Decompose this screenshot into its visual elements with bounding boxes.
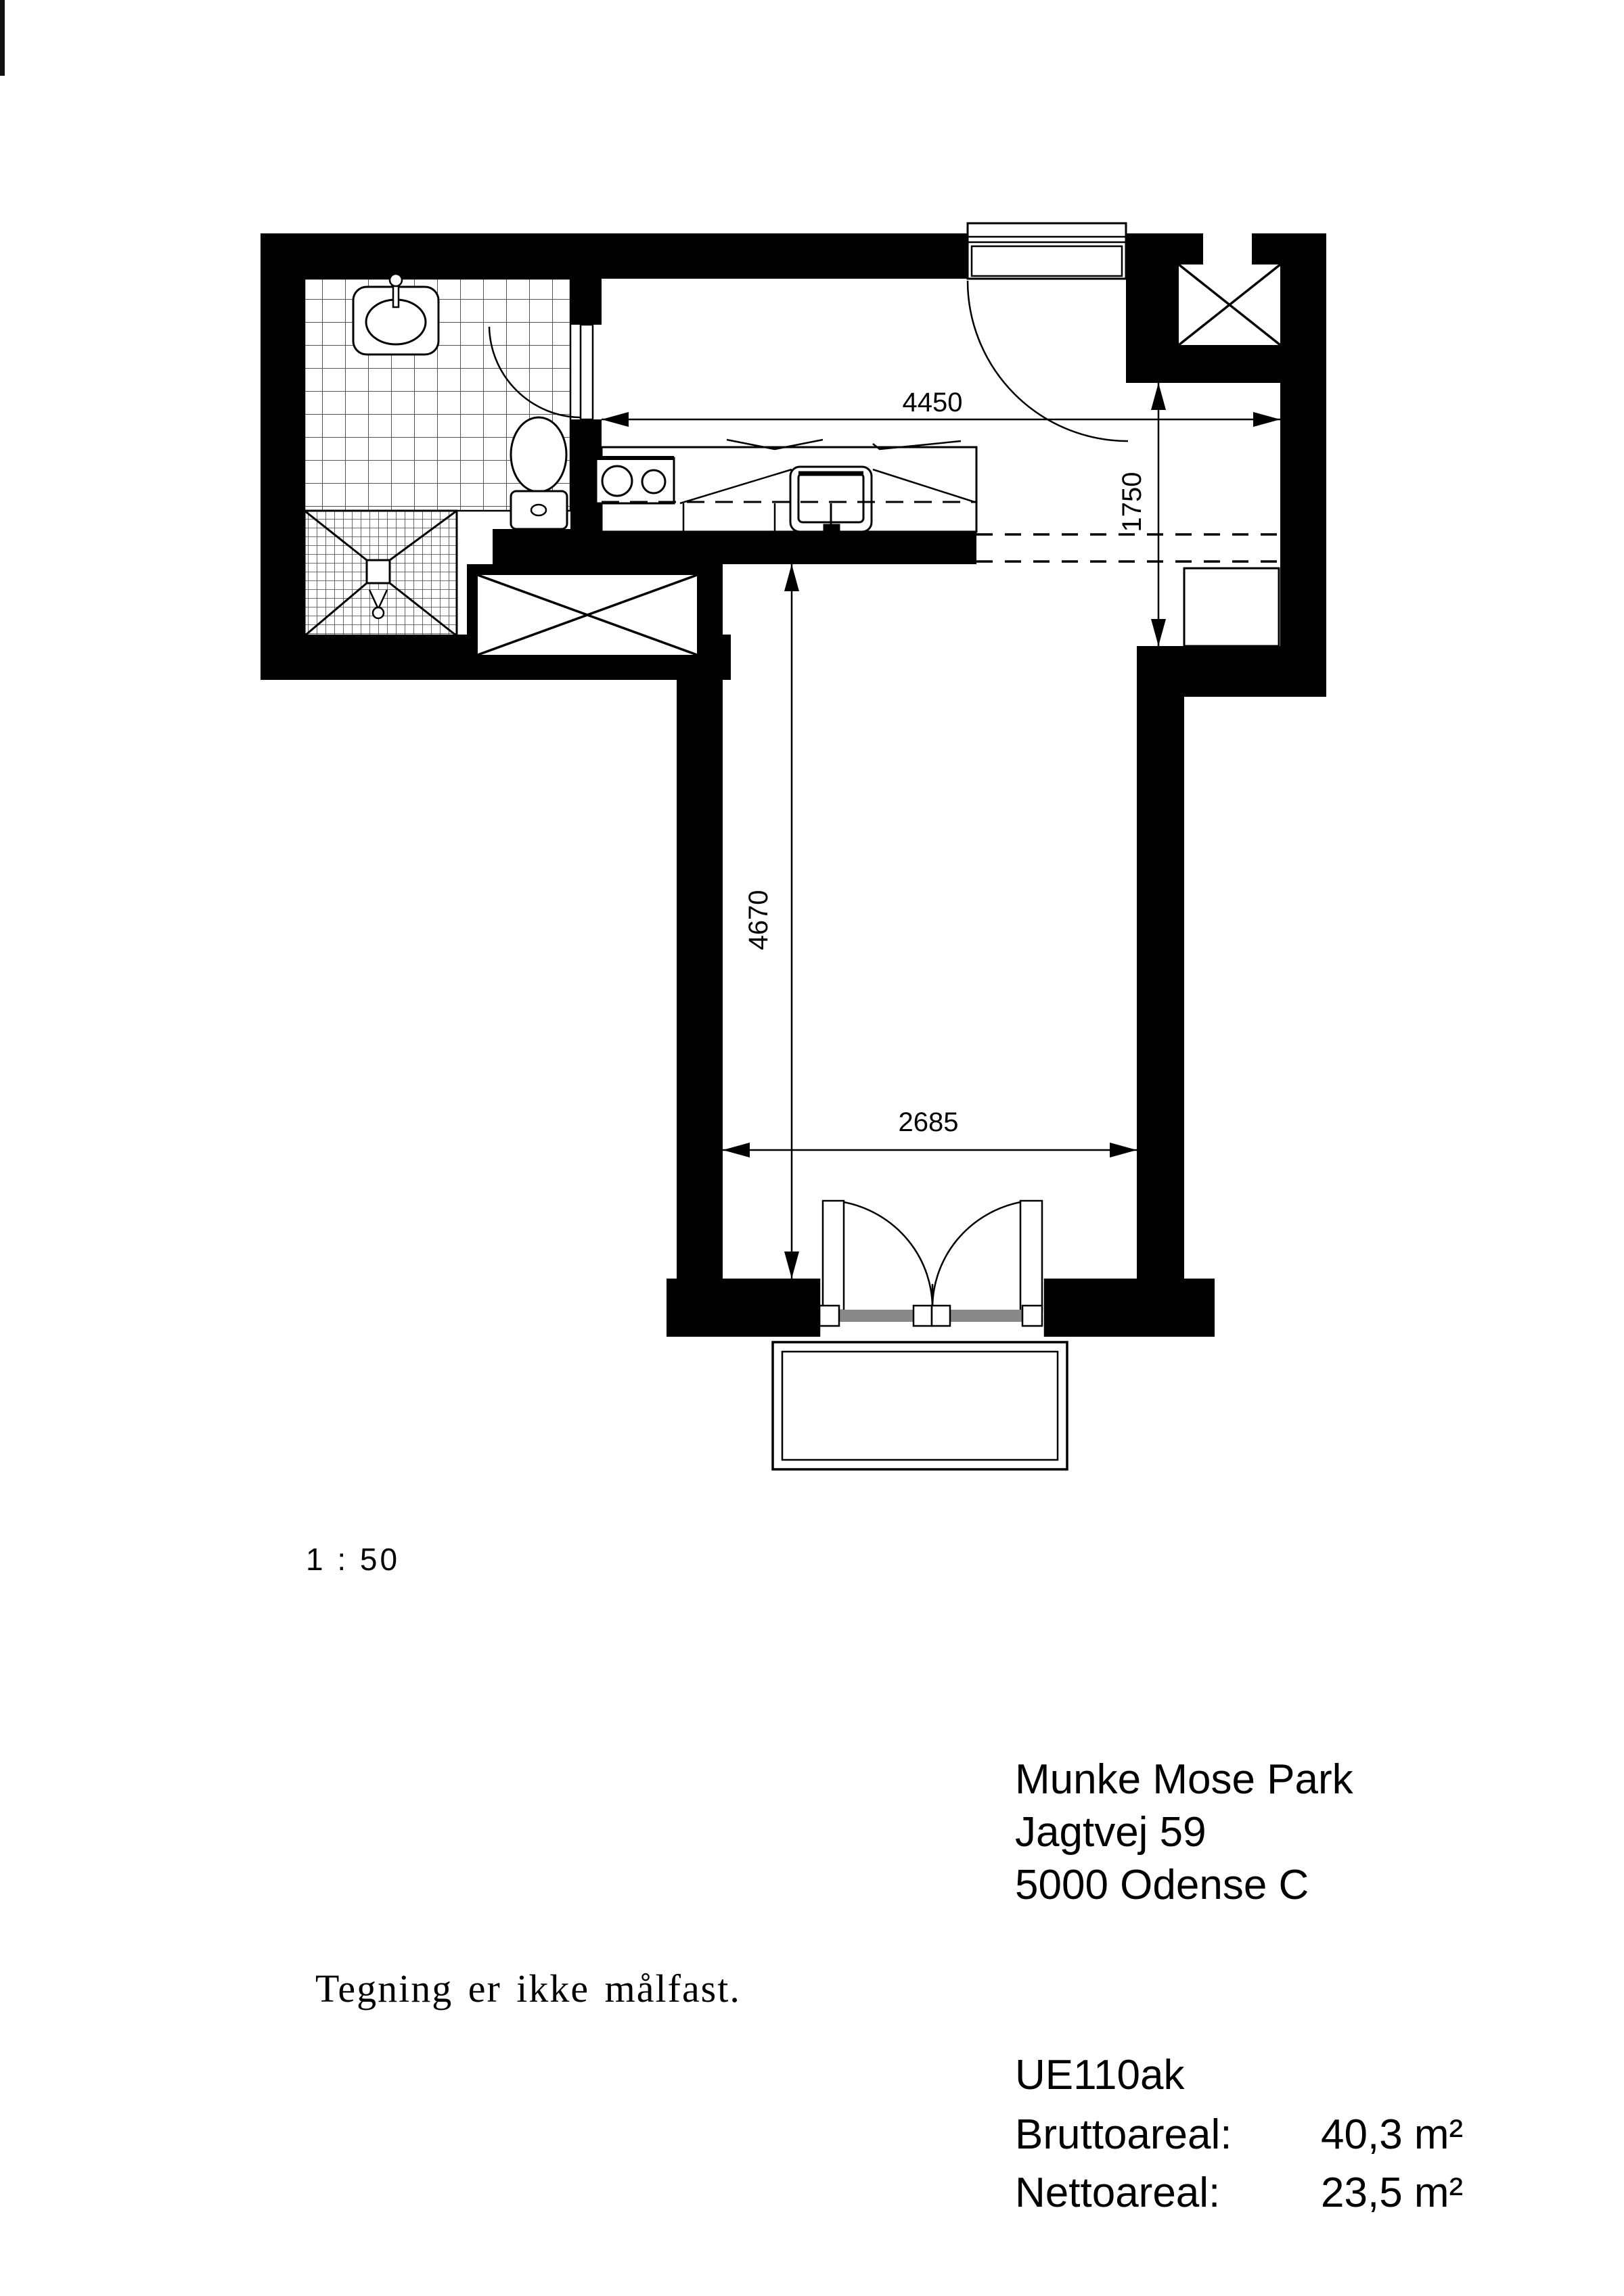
unit-info-block: UE110ak Bruttoareal:40,3 m² Nettoareal:2… [1015,2054,1463,2215]
bathroom-door-leaf [581,325,593,419]
address-line-3: 5000 Odense C [1015,1859,1353,1912]
gross-area-label: Bruttoareal: [1015,2113,1321,2157]
not-to-scale-note: Tegning er ikke målfast. [315,1966,741,2011]
floorplan-sheet: { "plan": { "scale_label": "1 : 50", "no… [0,0,1624,2296]
dimension-4450: 4450 [602,388,1280,427]
toilet-symbol [511,417,567,529]
dimension-2685: 2685 [723,1107,1137,1157]
dim-room-length-label: 4670 [744,890,773,950]
address-line-1: Munke Mose Park [1015,1753,1353,1806]
washbasin-symbol [353,274,438,354]
hall-cabinet [1184,568,1279,646]
dim-hall-depth-label: 1750 [1117,472,1147,532]
gross-area-row: Bruttoareal:40,3 m² [1015,2113,1463,2157]
cooktop-symbol [596,458,674,503]
dimension-4670: 4670 [744,564,799,1279]
dim-kitchen-width-label: 4450 [903,388,963,417]
net-area-value: 23,5 m² [1321,2169,1463,2216]
address-block: Munke Mose Park Jagtvej 59 5000 Odense C [1015,1753,1353,1912]
overhead-opening-dashes [976,534,1280,561]
kitchen-counter [596,440,976,533]
balcony [773,1342,1067,1469]
entrance-door-swing-arc [968,281,1128,441]
address-line-2: Jagtvej 59 [1015,1806,1353,1859]
french-doors-symbol [823,1201,1042,1310]
gross-area-value: 40,3 m² [1321,2111,1463,2158]
floorplan-drawing: 4450 1750 4670 2685 [0,0,1624,1624]
shower-symbol [304,511,457,636]
page-corner-mark [0,0,5,76]
entrance-door-symbol [968,223,1128,441]
net-area-row: Nettoareal:23,5 m² [1015,2172,1463,2215]
dim-room-width-label: 2685 [899,1107,959,1137]
unit-id: UE110ak [1015,2054,1463,2097]
shower-drain-icon [367,560,390,583]
kitchen-sink-symbol [790,467,872,533]
scale-label: 1 : 50 [306,1541,400,1578]
dimension-1750: 1750 [1117,383,1166,646]
net-area-label: Nettoareal: [1015,2172,1321,2215]
wall-niche [1203,233,1252,265]
